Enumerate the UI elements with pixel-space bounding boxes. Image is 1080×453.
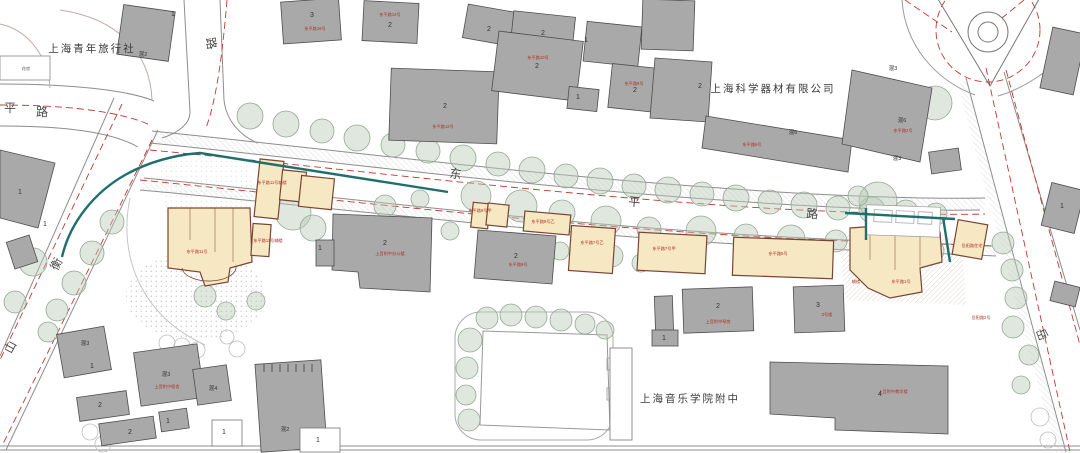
svg-text:东平路11号辅楼: 东平路11号辅楼 [257,179,286,186]
place-label-music-school: 上海音乐学院附中 [640,392,740,405]
svg-text:东平路9号: 东平路9号 [508,261,527,268]
road-label-west-2: 路 [36,104,48,119]
svg-text:1: 1 [316,437,320,444]
road-label-dongping-1: 东 [449,166,463,182]
svg-text:2: 2 [487,26,491,33]
svg-text:东平路11号辅楼: 东平路11号辅楼 [253,237,282,244]
svg-text:混3: 混3 [889,64,898,72]
svg-text:辅楼: 辅楼 [852,278,860,285]
svg-text:混6: 混6 [789,128,798,136]
svg-text:2: 2 [98,402,102,409]
svg-text:东平路12号: 东平路12号 [432,123,453,130]
svg-text:2: 2 [514,253,518,260]
svg-text:东平路8号: 东平路8号 [624,80,643,87]
svg-text:东平路16号: 东平路16号 [304,25,325,32]
svg-text:混3: 混3 [893,154,902,162]
svg-text:上音附中琴房: 上音附中琴房 [705,318,730,325]
svg-text:1: 1 [90,363,94,370]
svg-text:1: 1 [171,11,175,18]
svg-text:上音附中宿舍: 上音附中宿舍 [154,383,180,390]
svg-text:东平路6号: 东平路6号 [742,141,761,148]
svg-text:1: 1 [18,189,22,196]
place-label-science-co: 上海科学器材有限公司 [711,82,836,95]
svg-text:1: 1 [222,429,226,436]
svg-text:东平路9号乙: 东平路9号乙 [531,218,554,225]
svg-text:1: 1 [584,37,588,44]
svg-text:3: 3 [310,12,314,19]
svg-text:混6: 混6 [898,116,907,124]
place-label-youth-hostel: 上海青年旅行社 [48,42,136,55]
garden-hut-label: 花房 [22,65,30,72]
svg-text:东平路9号甲: 东平路9号甲 [468,207,491,214]
svg-text:东平路10号: 东平路10号 [527,54,548,61]
svg-text:3号楼: 3号楼 [822,311,833,318]
road-label-north-1: 路 [203,36,220,50]
svg-text:混3: 混3 [162,370,171,378]
svg-text:1: 1 [662,335,666,342]
svg-text:混4: 混4 [209,384,218,392]
svg-text:3: 3 [816,302,820,309]
svg-text:1: 1 [166,418,170,425]
road-label-hengshan-2: 山 [1,339,19,356]
svg-text:岳阳路2号: 岳阳路2号 [971,314,990,321]
road-label-dongping-3: 路 [806,206,819,222]
svg-text:岳阳路住宅: 岳阳路住宅 [962,242,983,249]
svg-text:东平路7号乙: 东平路7号乙 [580,239,603,246]
svg-text:2: 2 [443,103,447,110]
svg-text:东平路7号甲: 东平路7号甲 [652,245,675,252]
road-label-dongping-2: 平 [628,194,641,209]
road-label-hengshan-1: 衡 [47,256,65,273]
svg-text:东平路11号: 东平路11号 [186,248,207,255]
site-plan: 上海青年旅行社 上海科学器材有限公司 上海音乐学院附中 花房 东 平 路 衡 山… [0,0,1080,453]
svg-text:2: 2 [716,303,720,310]
svg-text:东平路2号: 东平路2号 [893,127,912,134]
site-plan-canvas: 上海青年旅行社 上海科学器材有限公司 上海音乐学院附中 花房 东 平 路 衡 山… [0,0,1080,453]
svg-text:混3: 混3 [81,339,90,347]
svg-text:上音附中办公楼: 上音附中办公楼 [375,250,404,257]
svg-text:2: 2 [535,63,539,70]
svg-text:2: 2 [633,87,637,94]
svg-text:2: 2 [383,240,387,247]
svg-text:1: 1 [43,221,47,228]
svg-text:1: 1 [1060,203,1064,210]
svg-text:2: 2 [541,30,545,37]
svg-text:1: 1 [576,94,580,101]
svg-text:1: 1 [318,245,322,252]
svg-text:2: 2 [128,429,132,436]
road-label-west-1: 平 [4,101,16,115]
svg-text:东平路5号: 东平路5号 [768,250,787,257]
school-main-building [770,362,948,434]
svg-text:2: 2 [698,83,702,90]
svg-text:混2: 混2 [139,50,148,58]
svg-text:东平路1号: 东平路1号 [891,278,910,285]
svg-text:东平路14号: 东平路14号 [379,11,400,18]
svg-text:混2: 混2 [281,425,290,433]
svg-text:上音附中教学楼: 上音附中教学楼 [878,388,907,395]
svg-text:2: 2 [388,22,392,29]
